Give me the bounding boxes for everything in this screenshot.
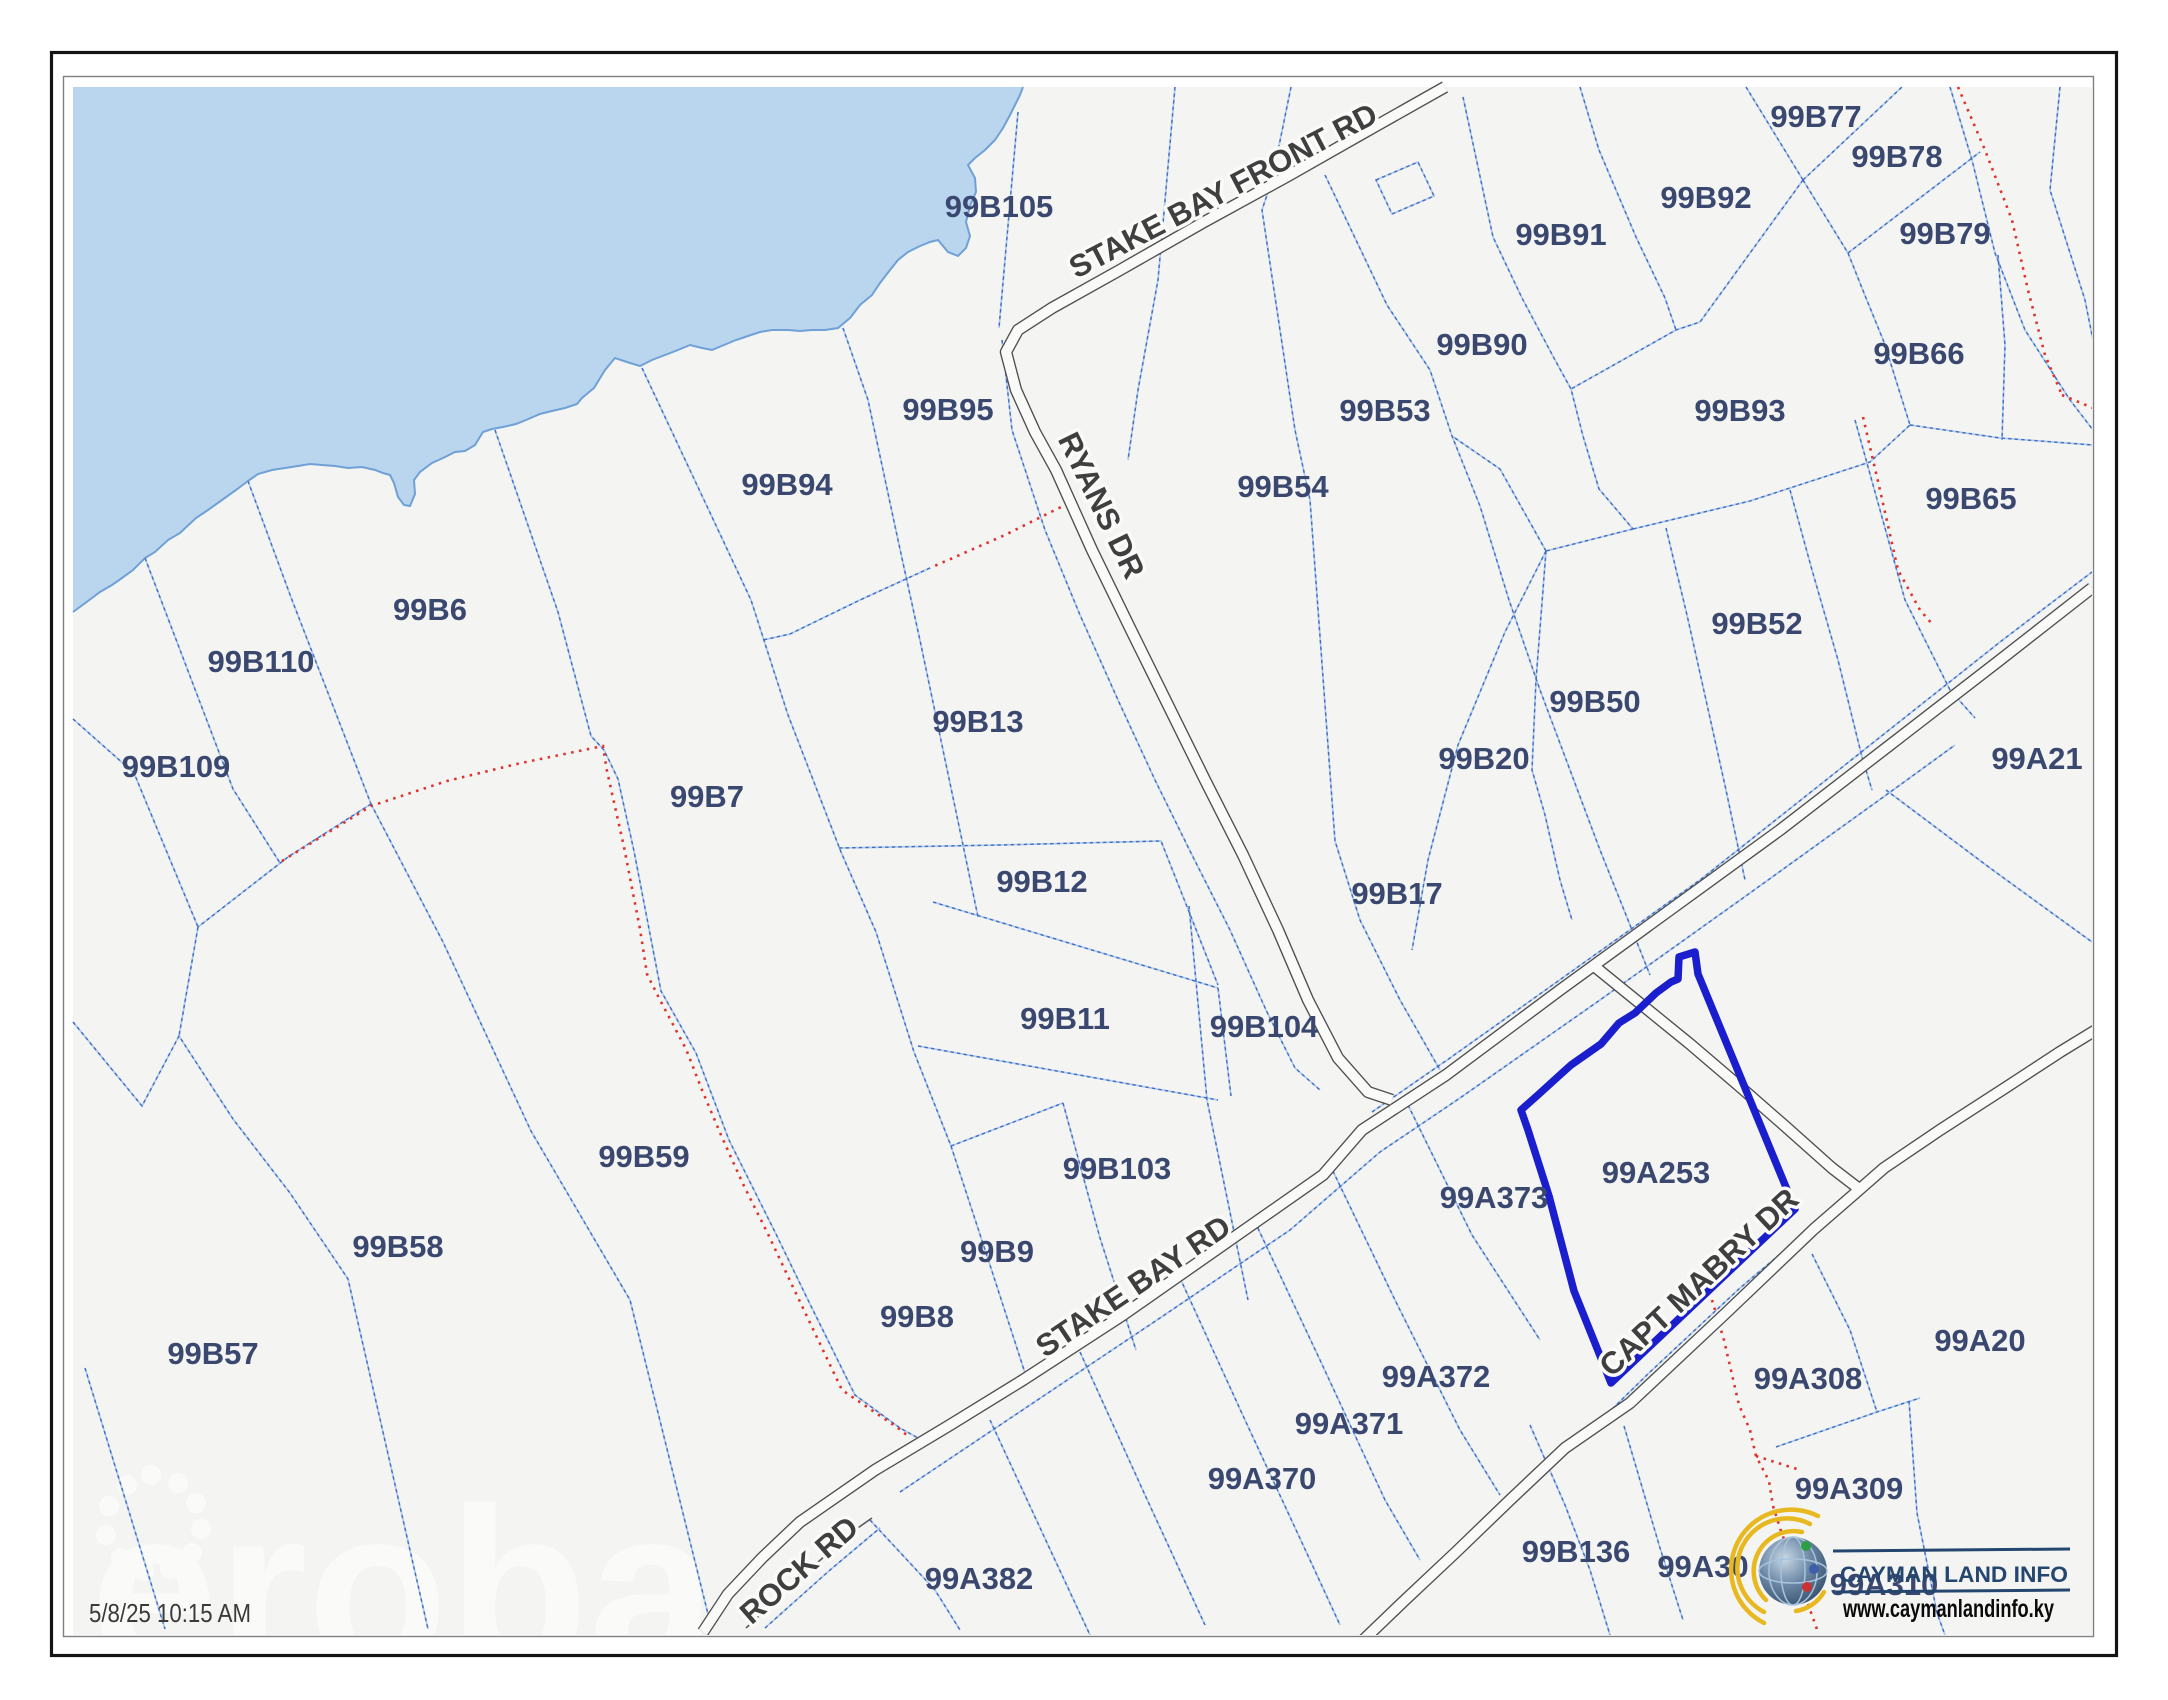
svg-text:99B12: 99B12: [996, 864, 1087, 899]
svg-text:www.caymanlandinfo.ky: www.caymanlandinfo.ky: [1842, 1595, 2054, 1623]
svg-text:99A373: 99A373: [1440, 1180, 1549, 1215]
svg-text:99B95: 99B95: [902, 392, 993, 427]
svg-text:99B9: 99B9: [960, 1234, 1034, 1269]
svg-text:99B57: 99B57: [167, 1336, 258, 1371]
svg-text:99B79: 99B79: [1899, 216, 1990, 251]
svg-text:99B90: 99B90: [1436, 327, 1527, 362]
svg-text:99B136: 99B136: [1522, 1534, 1631, 1569]
svg-text:99B65: 99B65: [1925, 481, 2016, 516]
svg-text:99B13: 99B13: [932, 704, 1023, 739]
svg-text:99B11: 99B11: [1020, 1001, 1110, 1036]
svg-text:99B92: 99B92: [1660, 180, 1751, 215]
svg-text:5/8/25 10:15 AM: 5/8/25 10:15 AM: [89, 1598, 251, 1628]
svg-text:99B77: 99B77: [1770, 99, 1861, 134]
svg-text:99B6: 99B6: [393, 592, 467, 627]
svg-text:99B93: 99B93: [1694, 393, 1785, 428]
svg-text:99B8: 99B8: [880, 1299, 954, 1334]
svg-text:99A309: 99A309: [1795, 1471, 1904, 1506]
svg-text:99B66: 99B66: [1873, 336, 1964, 371]
svg-text:99B50: 99B50: [1549, 684, 1640, 719]
svg-text:99B59: 99B59: [598, 1139, 689, 1174]
svg-text:99B53: 99B53: [1339, 393, 1430, 428]
svg-text:99A382: 99A382: [925, 1561, 1034, 1596]
svg-text:99B7: 99B7: [670, 779, 744, 814]
svg-text:99B78: 99B78: [1851, 139, 1942, 174]
svg-text:99B110: 99B110: [208, 644, 315, 679]
svg-text:99B104: 99B104: [1210, 1009, 1319, 1044]
svg-text:99B17: 99B17: [1351, 876, 1442, 911]
svg-text:99B94: 99B94: [741, 467, 833, 502]
svg-text:99A253: 99A253: [1602, 1155, 1711, 1190]
svg-text:99B105: 99B105: [945, 189, 1054, 224]
svg-text:99A372: 99A372: [1382, 1359, 1491, 1394]
svg-text:99A308: 99A308: [1754, 1361, 1863, 1396]
svg-text:99B109: 99B109: [122, 749, 231, 784]
svg-text:99A371: 99A371: [1295, 1406, 1404, 1441]
svg-text:99A21: 99A21: [1991, 741, 2082, 776]
svg-text:99B91: 99B91: [1515, 217, 1606, 252]
svg-text:99B103: 99B103: [1063, 1151, 1172, 1186]
svg-text:99B20: 99B20: [1438, 741, 1529, 776]
svg-text:99A370: 99A370: [1208, 1461, 1317, 1496]
svg-text:99B58: 99B58: [352, 1229, 443, 1264]
svg-text:99B54: 99B54: [1237, 469, 1329, 504]
svg-text:99B52: 99B52: [1711, 606, 1802, 641]
svg-text:CAYMAN LAND INFO: CAYMAN LAND INFO: [1840, 1562, 2068, 1587]
svg-text:99A20: 99A20: [1934, 1323, 2025, 1358]
